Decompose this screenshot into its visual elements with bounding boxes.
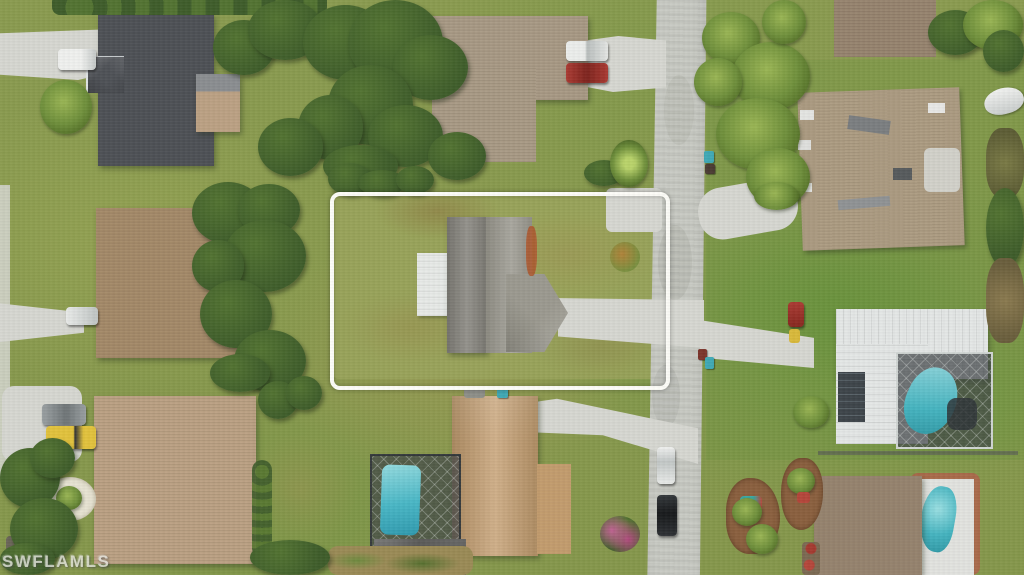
trees-bottom-center-left: [250, 540, 330, 575]
vegetation-right-edge: [986, 128, 1024, 343]
red-yard-items: [802, 542, 820, 575]
palm-top-left: [40, 80, 92, 134]
yellow-object-right-middle: [789, 329, 800, 343]
watermark-text: SWFLAMLS: [2, 552, 110, 572]
house-roof-bottom-center: [452, 396, 538, 556]
patio-furniture: [947, 398, 977, 430]
tree-cluster-left-of-subject: [192, 182, 310, 394]
solar-panel: [838, 372, 865, 422]
property-boundary-rectangle: [330, 192, 670, 390]
pool-bottom-center: [380, 464, 421, 535]
roof-debris: [928, 103, 945, 113]
palm-cluster-east-of-road: [694, 0, 810, 212]
palm-in-bed: [746, 524, 778, 554]
white-van-on-road: [657, 447, 675, 484]
palm-north-of-boundary: [610, 140, 648, 187]
house-wing-bottom-center: [537, 464, 571, 554]
red-item-in-bed: [797, 492, 810, 503]
trees-right-of-bottom-left-house: [258, 376, 322, 424]
flower-bed-pink: [600, 516, 640, 552]
red-car-top-center: [566, 63, 608, 83]
roof-debris: [893, 168, 912, 180]
teal-trash-bin: [705, 357, 714, 369]
white-pickup-top-center: [566, 41, 608, 61]
vegetation-top-right-corner: [928, 0, 1024, 72]
palm-right-middle: [793, 396, 829, 428]
concrete-pad-top-right: [924, 148, 960, 192]
road-tire-smudge: [664, 75, 694, 145]
black-suv-on-road: [657, 495, 677, 536]
fence-line: [818, 451, 1018, 455]
shrub-above-boundary: [396, 166, 434, 194]
house-roof-bottom-left: [94, 396, 256, 564]
palm-in-bed: [787, 468, 815, 494]
palm-in-bed: [732, 498, 762, 526]
house-roof-bottom-right: [814, 476, 922, 575]
gray-car-bottom-left: [42, 404, 86, 425]
house-roof-top-right-corner: [834, 0, 936, 57]
bush-top-center-house: [428, 132, 486, 180]
aerial-neighborhood-photo: SWFLAMLS: [0, 0, 1024, 575]
white-truck-top-left: [58, 49, 96, 70]
white-car-mid-left: [66, 307, 98, 325]
red-car-right-middle: [788, 302, 804, 327]
dry-brush-bottom: [328, 546, 473, 575]
